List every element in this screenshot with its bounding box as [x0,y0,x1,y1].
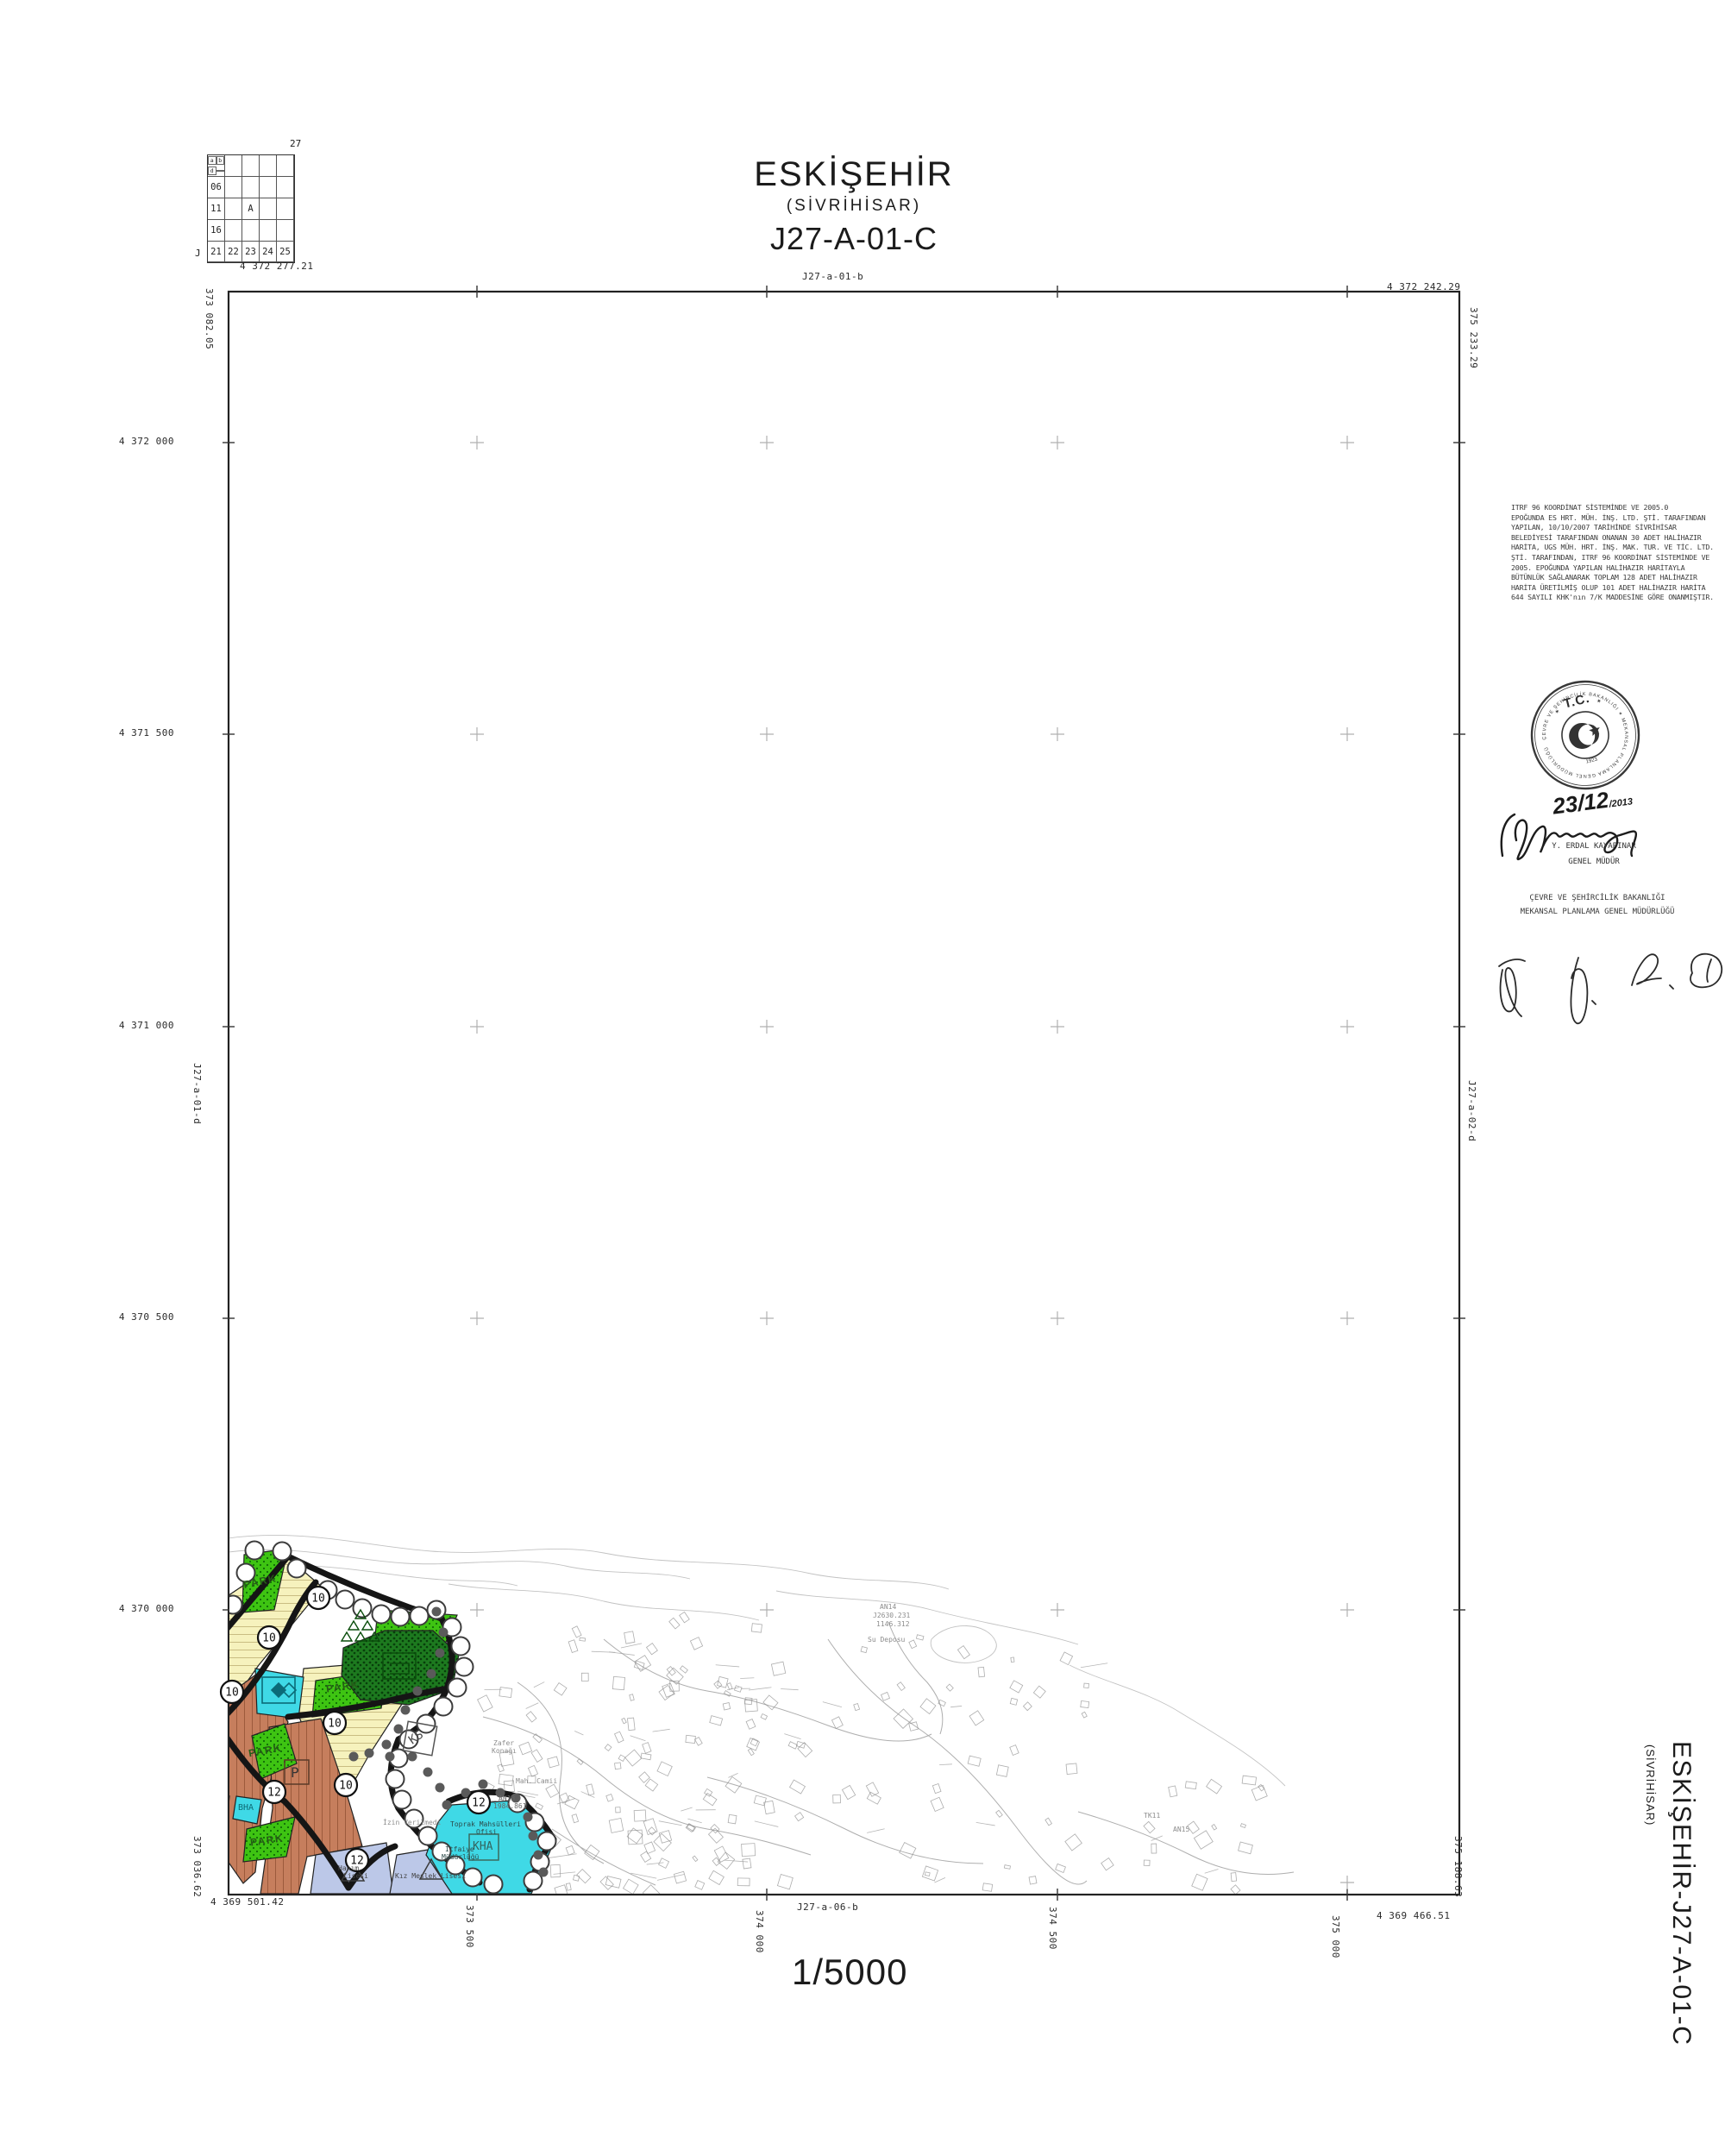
grid-cross [1340,1876,1354,1889]
basemap-building [1010,1698,1017,1705]
road-width-value: 10 [339,1780,353,1793]
boundary-circle [386,1770,405,1788]
basemap-building [639,1772,650,1782]
basemap-line [749,1688,771,1690]
basemap-line [554,1872,576,1875]
basemap-building [831,1717,843,1729]
basemap-building [996,1810,1003,1817]
basemap-line [724,1860,748,1862]
basemap-building [615,1763,621,1769]
basemap-building [1045,1818,1052,1826]
basemap-building [616,1807,621,1813]
poi-an13: AN13 [499,1795,515,1802]
grid-cross [1340,1603,1354,1617]
basemap-building [695,1738,703,1746]
road-circle: 12 [467,1791,490,1813]
coord-top-left: 4 372 277.21 [240,261,313,272]
basemap-building [833,1795,841,1803]
locator-row-16: 16 [208,220,225,242]
coord-right-top: 375 233.29 [1468,307,1479,368]
basemap-building [764,1801,775,1813]
director-signature [1502,814,1636,859]
note-line: 644 SAYILI KHK'nın 7/K MADDESİNE GÖRE ON… [1511,593,1725,603]
basemap-building [528,1765,537,1776]
neighbour-sheet-top: J27-a-01-b [802,271,863,282]
basemap-building [1084,1683,1089,1688]
basemap-building [746,1719,756,1730]
boundary-circle [288,1560,306,1578]
poi-school1-line2: Lisesi [343,1872,368,1880]
basemap-building [581,1673,588,1681]
note-line: YAPILAN, 10/10/2007 TARİHİNDE SİVRİHİSAR [1511,523,1725,533]
sit-boundary-dot [413,1687,423,1696]
sit-boundary-dot [436,1783,445,1793]
basemap-building [657,1762,672,1776]
quarter-c-highlight [216,170,225,172]
grid-northing-label: 4 370 500 [105,1311,174,1323]
basemap-line [784,1734,800,1739]
basemap-building [842,1785,855,1799]
locator-corner-letter: J [195,248,201,259]
basemap-building [605,1744,612,1751]
basemap-line [657,1874,684,1880]
basemap-building [1239,1842,1253,1854]
sit-boundary-dot [524,1813,533,1822]
basemap-building [566,1845,574,1855]
note-line: EPOĞUNDA ES HRT. MÜH. İNŞ. LTD. ŞTİ. TAR… [1511,513,1725,524]
grid-cross [760,727,774,741]
locator-22: 22 [225,242,242,262]
basemap-building [743,1858,751,1869]
basemap-building [499,1774,513,1785]
basemap-building [946,1684,953,1691]
basemap-building [761,1713,767,1719]
poi-school2: Kız Meslek Lisesi [395,1872,466,1880]
basemap-building [710,1716,723,1725]
basemap-building [881,1692,890,1700]
basemap-streets [483,1622,1294,1885]
basemap-line [687,1819,701,1823]
basemap-line [534,1682,544,1688]
grid-cross [470,727,484,741]
sit-boundary-dot [382,1740,392,1750]
basemap-building [1242,1776,1256,1785]
note-line: HARİTA, UGS MÜH. HRT. İNŞ. MAK. TUR. VE … [1511,543,1725,553]
basemap-building [734,1686,742,1693]
crescent-icon [1566,720,1602,752]
locator-cell-a: A [242,198,260,220]
road-width-value: 10 [262,1632,276,1645]
poi-school1-line1: Hanım [338,1864,359,1872]
scale-label: 1/5000 [792,1952,907,1993]
grid-cross [760,1311,774,1325]
basemap-building [526,1712,536,1722]
road-circle: 10 [307,1587,329,1609]
basemap-building [916,1635,924,1640]
basemap-building [709,1870,724,1884]
basemap-building [724,1691,731,1697]
grid-cross [1051,1603,1064,1617]
basemap-building [1065,1834,1082,1851]
coord-left-bottom: 373 036.62 [191,1836,203,1897]
basemap-building [771,1662,785,1675]
basemap-building [580,1637,586,1641]
sit-boundary-dot [439,1628,448,1637]
basemap-building [618,1755,625,1761]
poi-tk11: TK11 [1144,1812,1160,1820]
basemap-building [645,1779,657,1791]
boundary-circle [373,1606,391,1624]
poi-camii: Mah. Camii [516,1777,557,1785]
signer-name: Y. ERDAL KAYAPINAR [1508,842,1680,851]
quarter-d: d [208,167,216,175]
basemap-building [744,1698,752,1705]
basemap-building [1081,1700,1089,1707]
road-circle: 10 [258,1626,280,1649]
basemap-building [703,1793,717,1805]
quarter-a: a [208,156,216,165]
grid-easting-label: 374 500 [1047,1907,1058,1950]
sit-boundary-dot [423,1768,433,1777]
poi-izin: İzin Verilmedi [383,1819,441,1826]
date-year: /2013 [1609,796,1634,809]
sheet-locator-grid: a b d 06 11 A 16 21 22 23 24 25 [207,154,295,263]
basemap-line [939,1764,952,1765]
locator-quarter-cell: a b d [208,155,225,177]
basemap-building [742,1844,756,1857]
basemap-building [728,1814,737,1824]
basemap-building [648,1827,655,1835]
locator-row-11: 11 [208,198,225,220]
poi-su-deposu: Su Deposu [868,1636,905,1644]
basemap-building [695,1881,705,1890]
basemap-building [897,1682,905,1691]
grid-northing-label: 4 371 000 [105,1020,174,1031]
poi-zafer-1: Zafer [493,1739,514,1747]
basemap-building [577,1759,583,1765]
basemap-building [718,1676,729,1688]
coord-top-right: 4 372 242.29 [1387,281,1460,292]
basemap-building [680,1612,690,1622]
basemap-building [1231,1873,1237,1882]
basemap-building [531,1750,543,1763]
quarter-b: b [216,156,225,165]
basemap-building [627,1718,635,1731]
basemap-building [790,1780,806,1794]
basemap-building [625,1750,642,1766]
basemap-building [1024,1702,1032,1711]
locator-25: 25 [277,242,294,262]
basemap-building [1144,1821,1155,1832]
neighbour-sheet-right: J27-a-02-d [1466,1080,1477,1141]
poi-itfaiye: İtfaiye [445,1845,474,1853]
zone-code-kha: KHA [473,1840,492,1853]
basemap-building [654,1833,671,1851]
grid-cross [1340,727,1354,741]
neighbour-sheet-left: J27-a-01-d [191,1063,203,1124]
sit-boundary-dot [386,1752,395,1762]
basemap-building [565,1795,579,1809]
basemap-building [909,1722,919,1732]
basemap-building [932,1783,941,1793]
basemap-line [621,1644,642,1648]
basemap-building [969,1711,984,1725]
basemap-building [1101,1858,1113,1870]
basemap-building [788,1742,797,1750]
basemap-building [634,1810,646,1821]
basemap-line [976,1822,995,1826]
boundary-circle [392,1608,410,1626]
note-line: ITRF 96 KOORDİNAT SİSTEMİNDE VE 2005.0 [1511,503,1725,513]
basemap-building [957,1646,969,1659]
poi-zafer-2: Konağı [492,1747,517,1755]
sheet-title-city: ESKİŞEHİR [638,155,1069,194]
basemap-building [931,1797,944,1811]
basemap-building [920,1699,936,1714]
basemap-line [716,1665,740,1667]
sheet-title-district: (SİVRİHİSAR) [638,197,1069,216]
ministry-name: ÇEVRE VE ŞEHİRCİLİK BAKANLIĞI [1494,894,1701,902]
boundary-circle [207,1617,225,1635]
basemap-building [714,1846,728,1862]
basemap-line [950,1706,962,1707]
poi-an14: AN14 [880,1603,896,1611]
basemap-building [1056,1864,1066,1872]
poi-ofisi: Ofisi [476,1828,497,1836]
basemap-building [795,1813,804,1821]
basemap-building [922,1866,938,1881]
basemap-building [1082,1712,1087,1718]
basemap-building [777,1874,793,1889]
basemap-building [996,1765,1008,1777]
boundary-circle [452,1637,470,1656]
grid-northing-label: 4 371 500 [105,727,174,739]
poi-toprak: Toprak Mahsülleri [450,1820,521,1828]
sit-boundary-dot [432,1607,442,1617]
basemap-building [690,1637,702,1650]
basemap-building [751,1624,762,1632]
basemap-building [606,1795,613,1802]
basemap-building [861,1647,867,1653]
grid-cross [1051,727,1064,741]
side-sheet-sublabel: (SİVRİHİSAR) [1644,1744,1657,1826]
boundary-circle [419,1827,437,1845]
sit-boundary-dot [349,1752,359,1762]
sit-boundary-dot [427,1669,436,1679]
sit-boundary-dot [394,1725,404,1734]
grid-cross [1051,436,1064,449]
note-line: HARİTA ÜRETİLMİŞ OLUP 101 ADET HALİHAZIR… [1511,583,1725,594]
basemap-building [615,1732,624,1743]
road-width-value: 12 [267,1787,281,1800]
basemap-line [630,1736,646,1741]
grid-cross [760,1603,774,1617]
boundary-circle [455,1658,474,1676]
basemap-line [935,1877,945,1883]
sit-boundary-dot [539,1868,549,1877]
basemap-building [566,1883,571,1890]
basemap-building [609,1818,623,1832]
basemap-line [755,1821,779,1827]
poi-an13-elev: 1984.861 [493,1802,527,1810]
basemap-building [854,1703,860,1710]
boundary-circle [538,1832,556,1851]
zone-code-bha: BHA [238,1803,254,1813]
sit-boundary-dot [365,1749,374,1758]
basemap-building [1151,1844,1157,1853]
basemap-building [667,1667,675,1676]
side-sheet-label: ESKİŞEHİR-J27-A-01-C [1666,1741,1696,2046]
basemap-building [555,1885,568,1898]
basemap-building [554,1683,567,1696]
basemap-building [568,1640,578,1653]
basemap-building [686,1735,696,1743]
basemap-line [867,1829,885,1833]
basemap-building [612,1676,624,1689]
map-sheet-page: 10 10 10 10 10 12 12 12 1923 T.C. ✶ ✶ ÇE… [0,0,1725,2156]
basemap-building [745,1700,758,1712]
grid-cross [1340,1311,1354,1325]
coord-left-top: 373 082.05 [204,288,215,349]
poi-an15: AN15 [1173,1826,1189,1833]
sit-boundary-dot [534,1851,543,1860]
zone-code-parking: P [291,1764,299,1781]
sheet-title-number: J27-A-01-C [638,221,1069,257]
boundary-circle [464,1869,482,1887]
grid-cross [760,1020,774,1034]
basemap-building [643,1743,651,1754]
basemap-building [499,1688,512,1698]
grid-northing-label: 4 370 000 [105,1603,174,1614]
grid-cross [1340,436,1354,449]
grid-cross [470,1020,484,1034]
grid-cross [1051,1020,1064,1034]
sit-boundary-dot [479,1780,488,1789]
basemap-building [1010,1681,1023,1693]
basemap-building [546,1784,559,1797]
boundary-circle [485,1876,503,1894]
basemap-line [526,1703,539,1709]
basemap-line [740,1678,754,1679]
basemap-building [550,1864,561,1877]
grid-northing-label: 4 372 000 [105,436,174,447]
basemap-building [1231,1885,1240,1895]
grid-cross [1051,1311,1064,1325]
sit-boundary-dot [401,1706,411,1715]
basemap-building [519,1742,532,1754]
basemap-building [1004,1865,1010,1870]
basemap-building [536,1803,543,1809]
basemap-building [478,1695,493,1712]
basemap-building [624,1631,635,1644]
locator-24: 24 [260,242,277,262]
basemap-line [823,1702,842,1707]
grid-crosses [470,436,1354,1889]
grid-cross [470,436,484,449]
boundary-circle [411,1607,429,1625]
poi-an14-elev: 1146.312 [876,1620,910,1628]
basemap-building [1011,1657,1014,1663]
signer-title: GENEL MÜDÜR [1508,858,1680,866]
basemap-building [925,1872,930,1876]
basemap-building [1251,1785,1267,1801]
locator-corner-number: 27 [290,138,301,149]
basemap-building [1240,1824,1245,1828]
basemap-building [1033,1686,1045,1698]
boundary-circle [336,1591,354,1609]
sit-boundary-dot [529,1832,538,1841]
boundary-circle [448,1679,467,1697]
note-line: ŞTİ. TARAFINDAN, ITRF 96 KOORDİNAT SİSTE… [1511,553,1725,563]
basemap-building [674,1871,686,1883]
grid-cross [1340,1020,1354,1034]
basemap-building [624,1879,639,1894]
road-circle: 10 [335,1774,357,1796]
basemap-line [609,1652,635,1656]
basemap-building [909,1640,917,1649]
basemap-building [605,1876,621,1889]
basemap-building [641,1753,651,1760]
basemap-building [1194,1831,1213,1849]
basemap-building [586,1784,594,1795]
basemap-building [643,1885,659,1901]
boundary-circle [354,1600,372,1618]
basemap-building [1010,1745,1019,1756]
note-line: 2005. EPOĞUNDA YAPILAN HALİHAZIR HARİTAY… [1511,563,1725,574]
zone-park-sliver-1 [212,1720,226,1786]
basemap-building [747,1738,760,1751]
basemap-building [647,1644,658,1655]
basemap-building [1060,1652,1073,1665]
road-circle: 10 [221,1681,243,1703]
basemap-building [498,1764,505,1772]
basemap-building [900,1843,916,1858]
neighbour-sheet-bottom: J27-a-06-b [797,1901,858,1913]
basemap-building [1066,1763,1077,1775]
basemap-line [647,1863,664,1864]
basemap-building [1207,1779,1222,1794]
basemap-building [1029,1876,1037,1884]
note-line: BELEDİYESİ TARAFINDAN ONANAN 30 ADET HAL… [1511,533,1725,544]
grid-cross [470,1311,484,1325]
basemap-building [572,1814,579,1823]
basemap-building [574,1875,580,1881]
road-circle: 10 [323,1712,346,1734]
basemap-line [1205,1869,1219,1873]
basemap-building [693,1856,698,1861]
basemap-building [572,1626,581,1637]
basemap-building [669,1618,680,1629]
basemap-building [1212,1825,1217,1830]
approval-note-block: ITRF 96 KOORDİNAT SİSTEMİNDE VE 2005.0 E… [1511,503,1725,603]
basemap-line [1081,1663,1107,1668]
basemap-line [574,1731,583,1735]
basemap-building [968,1756,981,1766]
coord-bottom-right: 4 369 466.51 [1377,1910,1450,1921]
sit-boundary-dot [436,1649,445,1658]
basemap-building [867,1792,881,1804]
basemap-line [653,1729,670,1732]
boundary-circle [435,1698,453,1716]
basemap-line [781,1688,798,1689]
basemap-building [1192,1874,1207,1890]
road-width-value: 10 [225,1687,239,1700]
road-width-value: 12 [472,1797,486,1810]
zone-park-sliver-2 [212,1796,229,1865]
locator-row-06: 06 [208,177,225,198]
basemap-building [978,1667,985,1677]
basemap-building [630,1694,635,1701]
